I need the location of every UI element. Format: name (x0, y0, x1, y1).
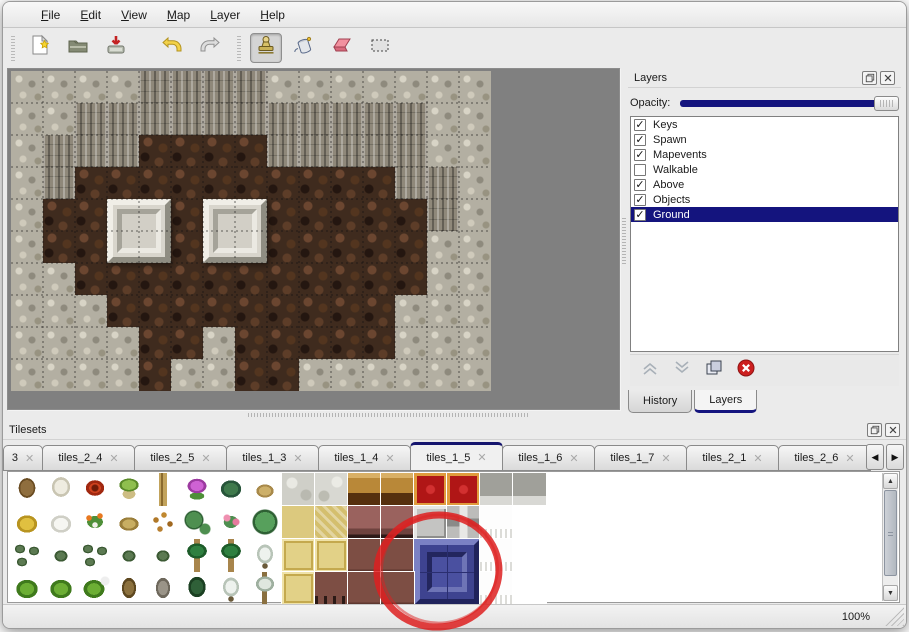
map-tile (363, 263, 395, 295)
map-tile (427, 135, 459, 167)
map-tile (299, 295, 331, 327)
tileset-tile-stump[interactable] (112, 473, 146, 506)
tileset-tile-fluff[interactable] (480, 539, 513, 572)
tileset-tab-tiles_2_1[interactable]: tiles_2_1✕ (686, 445, 779, 471)
right-arrow-icon: ▶ (892, 452, 899, 463)
map-tile (75, 199, 107, 231)
tileset-tab-tiles_1_7[interactable]: tiles_1_7✕ (594, 445, 687, 471)
tileset-tile-wood[interactable] (381, 473, 414, 506)
map-tile (299, 135, 331, 167)
map-tile (331, 135, 363, 167)
delete-layer-button[interactable] (734, 359, 758, 383)
fill-tool-button[interactable] (288, 33, 320, 63)
layer-action-buttons (630, 354, 899, 386)
menu-bar: FileEditViewMapLayerHelp (3, 2, 906, 28)
opacity-label: Opacity: (630, 97, 680, 109)
layer-name: Ground (653, 209, 690, 221)
map-tile (459, 263, 491, 295)
layers-panel-title: Layers (634, 72, 859, 84)
tileset-tile-flowerred[interactable] (78, 473, 112, 506)
scroll-down-button[interactable]: ▼ (883, 585, 898, 601)
tileset-tile-plain[interactable] (513, 539, 546, 572)
scroll-up-button[interactable]: ▲ (883, 473, 898, 489)
select-tool-button[interactable] (364, 33, 396, 63)
tileset-tab-tiles_1_4[interactable]: tiles_1_4✕ (318, 445, 411, 471)
left-arrow-icon: ◀ (872, 452, 879, 463)
layer-visibility-checkbox[interactable]: ✓ (634, 179, 646, 191)
map-tile (267, 135, 299, 167)
layer-visibility-checkbox[interactable]: ✓ (634, 134, 646, 146)
map-tile (107, 359, 139, 391)
layer-name: Keys (653, 119, 677, 131)
tab-label: tiles_2_1 (702, 452, 746, 464)
map-tile (11, 263, 43, 295)
map-tile (203, 295, 235, 327)
map-tile (459, 71, 491, 103)
map-tile (43, 231, 75, 263)
tileset-view[interactable]: ▲ ▼ (7, 471, 900, 603)
tileset-tab-tiles_1_6[interactable]: tiles_1_6✕ (502, 445, 595, 471)
delete-layer-icon (736, 358, 756, 383)
map-pillar-tile (203, 199, 267, 263)
map-tile (363, 71, 395, 103)
tileset-tile-shrub[interactable] (44, 539, 78, 572)
tileset-tile-cobble[interactable] (282, 473, 315, 506)
map-tile (11, 167, 43, 199)
tileset-tile-treedark[interactable] (180, 572, 214, 605)
close-tab-icon[interactable]: ✕ (845, 452, 854, 465)
map-tile (139, 359, 171, 391)
toolbar-grip[interactable] (237, 35, 241, 61)
map-tile (267, 359, 299, 391)
map-tile (459, 199, 491, 231)
layers-panel-titlebar: Layers (628, 68, 901, 88)
tileset-tile-treetwist[interactable] (112, 572, 146, 605)
map-tile (331, 327, 363, 359)
lower-layer-icon (672, 358, 692, 383)
layer-visibility-checkbox[interactable]: ✓ (634, 209, 646, 221)
tilesets-panel-titlebar: Tilesets (3, 420, 906, 440)
tileset-tile-shrubs[interactable] (78, 539, 112, 572)
map-tile (459, 167, 491, 199)
map-tile (235, 103, 267, 135)
tileset-tile-brown[interactable] (348, 539, 381, 572)
scrollbar-thumb[interactable] (884, 490, 897, 576)
tileset-tile-brown[interactable] (381, 539, 414, 572)
layer-row-above[interactable]: ✓Above (631, 177, 898, 192)
tileset-tile-cobble2[interactable] (315, 473, 348, 506)
map-tile (427, 103, 459, 135)
map-tile (11, 71, 43, 103)
map-tile (331, 231, 363, 263)
close-tab-icon[interactable]: ✕ (661, 452, 670, 465)
map-tile (299, 359, 331, 391)
tileset-tile-shrub[interactable] (146, 539, 180, 572)
close-tab-icon[interactable]: ✕ (109, 452, 118, 465)
map-tile (299, 199, 331, 231)
tab-label: 3 (12, 452, 18, 464)
tileset-tile-pinesnow[interactable] (214, 572, 248, 605)
tab-scroll-right-button[interactable]: ▶ (886, 444, 904, 470)
tileset-tile-palmsnow[interactable] (248, 572, 282, 605)
map-tile (459, 359, 491, 391)
close-tab-icon[interactable]: ✕ (569, 452, 578, 465)
tileset-tile-plain[interactable] (513, 572, 546, 605)
map-tile (459, 135, 491, 167)
map-tile (11, 327, 43, 359)
tileset-tile-bushsnow[interactable] (78, 572, 112, 605)
tileset-tile-bush[interactable] (44, 572, 78, 605)
map-tile (139, 71, 171, 103)
tileset-tile-treewhite[interactable] (44, 473, 78, 506)
tileset-tile-carpet[interactable] (414, 473, 447, 506)
tileset-tile-block2[interactable] (447, 506, 480, 539)
tileset-tile-flowerpurple[interactable] (180, 473, 214, 506)
toolbar (3, 29, 906, 66)
map-tile (267, 167, 299, 199)
tileset-tab-tiles_2_5[interactable]: tiles_2_5✕ (134, 445, 227, 471)
tab-scroll-left-button[interactable]: ◀ (866, 444, 884, 470)
map-tile (427, 199, 459, 231)
map-tile (427, 231, 459, 263)
map-tile (363, 199, 395, 231)
map-tile (395, 359, 427, 391)
tileset-tab-3[interactable]: 3✕ (3, 445, 43, 471)
map-tile (267, 199, 299, 231)
map-tile (331, 263, 363, 295)
close-tab-icon[interactable]: ✕ (385, 452, 394, 465)
map-tile (267, 103, 299, 135)
zoom-level: 100% (842, 611, 870, 623)
map-tile (139, 167, 171, 199)
map-tile (171, 295, 203, 327)
close-tab-icon[interactable]: ✕ (201, 452, 210, 465)
map-tile (171, 327, 203, 359)
map-tile (395, 263, 427, 295)
tileset-tile-palm[interactable] (214, 539, 248, 572)
tileset-tile-stone[interactable] (480, 473, 513, 506)
map-tile (363, 359, 395, 391)
tileset-tile-wood[interactable] (348, 473, 381, 506)
float-panel-icon[interactable] (862, 71, 877, 85)
tileset-tile-pinesnow[interactable] (248, 539, 282, 572)
map-tile (299, 263, 331, 295)
map-tile (235, 295, 267, 327)
up-arrow-icon: ▲ (887, 478, 894, 485)
tileset-tile-fern[interactable] (214, 473, 248, 506)
layer-name: Mapevents (653, 149, 707, 161)
vertical-splitter[interactable] (620, 68, 628, 410)
menu-item-layer[interactable]: Layer (200, 5, 250, 25)
down-arrow-icon: ▼ (887, 590, 894, 597)
map-tile (363, 295, 395, 327)
layer-row-spawn[interactable]: ✓Spawn (631, 132, 898, 147)
map-tile (395, 199, 427, 231)
map-tile (171, 135, 203, 167)
map-tile (75, 103, 107, 135)
map-tile (267, 263, 299, 295)
map-tile (203, 327, 235, 359)
map-tile (299, 167, 331, 199)
tileset-tile-maroon[interactable] (381, 506, 414, 539)
stamp-icon (254, 33, 278, 62)
close-tab-icon[interactable]: ✕ (293, 452, 302, 465)
raise-layer-button[interactable] (638, 359, 662, 383)
tab-label: tiles_1_5 (426, 452, 470, 464)
map-tile (267, 71, 299, 103)
stamp-tool-button[interactable] (250, 33, 282, 63)
tileset-tile-plain[interactable] (513, 506, 546, 539)
map-tile (107, 71, 139, 103)
layer-row-ground[interactable]: ✓Ground (631, 207, 898, 222)
layer-row-walkable[interactable]: Walkable (631, 162, 898, 177)
layer-row-objects[interactable]: ✓Objects (631, 192, 898, 207)
menu-item-file[interactable]: File (31, 5, 70, 25)
undo-tool-button[interactable] (156, 33, 188, 63)
menu-item-map[interactable]: Map (157, 5, 200, 25)
map-tile (395, 71, 427, 103)
map-tile (459, 327, 491, 359)
map-tile (363, 167, 395, 199)
duplicate-layer-icon (704, 358, 724, 383)
tileset-tile-leaves[interactable] (146, 506, 180, 539)
layer-row-keys[interactable]: ✓Keys (631, 117, 898, 132)
opacity-slider[interactable] (680, 95, 899, 111)
map-tile (299, 71, 331, 103)
map-tile (75, 71, 107, 103)
tileset-tile-grassdry[interactable] (112, 506, 146, 539)
map-tile (203, 103, 235, 135)
duplicate-layer-button[interactable] (702, 359, 726, 383)
layer-visibility-checkbox[interactable]: ✓ (634, 194, 646, 206)
tileset-scrollbar[interactable]: ▲ ▼ (882, 473, 898, 601)
tileset-tile-lilypad[interactable] (180, 506, 214, 539)
map-tile (203, 167, 235, 199)
layers-dock: Layers Opacity: ✓Keys✓Spawn✓MapeventsWal… (628, 68, 901, 413)
map-tile (43, 359, 75, 391)
map-tile (139, 263, 171, 295)
map-tile (395, 327, 427, 359)
map-tile (427, 263, 459, 295)
menu-item-help[interactable]: Help (250, 5, 295, 25)
map-tile (299, 103, 331, 135)
map-tile (395, 231, 427, 263)
close-panel-icon[interactable] (885, 423, 900, 437)
map-tile (11, 135, 43, 167)
map-tile (11, 359, 43, 391)
layer-name: Walkable (653, 164, 698, 176)
menu-item-edit[interactable]: Edit (70, 5, 111, 25)
app-window: FileEditViewMapLayerHelp Layers Opacity:… (2, 1, 907, 629)
map-tile (11, 295, 43, 327)
opacity-slider-handle[interactable] (874, 96, 899, 111)
map-tile (235, 71, 267, 103)
map-tile (427, 167, 459, 199)
map-canvas[interactable] (11, 71, 491, 391)
menu-item-view[interactable]: View (111, 5, 157, 25)
layer-row-mapevents[interactable]: ✓Mapevents (631, 147, 898, 162)
tileset-tile-blue2[interactable] (414, 539, 480, 605)
new-file-tool-button[interactable] (24, 33, 56, 63)
tileset-tile-tan1[interactable] (282, 506, 315, 539)
tileset-tile-treebare[interactable] (10, 473, 44, 506)
layer-visibility-checkbox[interactable] (634, 164, 646, 176)
float-panel-icon[interactable] (867, 423, 882, 437)
layer-name: Spawn (653, 134, 687, 146)
tileset-tile-plantdry[interactable] (248, 473, 282, 506)
tab-label: tiles_1_6 (518, 452, 562, 464)
map-tile (203, 71, 235, 103)
tileset-tile-tan2[interactable] (315, 506, 348, 539)
map-tile (267, 231, 299, 263)
tileset-tile-palm[interactable] (180, 539, 214, 572)
map-tile (331, 167, 363, 199)
map-tile (107, 103, 139, 135)
map-tile (363, 135, 395, 167)
map-panel (7, 68, 620, 410)
open-tool-button[interactable] (62, 33, 94, 63)
map-tile (139, 103, 171, 135)
layer-visibility-checkbox[interactable]: ✓ (634, 119, 646, 131)
tileset-tab-tiles_2_4[interactable]: tiles_2_4✕ (42, 445, 135, 471)
eraser-tool-button[interactable] (326, 33, 358, 63)
tileset-tile-fluff[interactable] (480, 506, 513, 539)
map-tile (171, 167, 203, 199)
tileset-tile-bush[interactable] (10, 572, 44, 605)
tileset-tile-brown[interactable] (348, 572, 381, 605)
map-tile (171, 231, 203, 263)
map-tile (107, 135, 139, 167)
tileset-tabbar: 3✕tiles_2_4✕tiles_2_5✕tiles_1_3✕tiles_1_… (3, 440, 906, 471)
map-tile (203, 135, 235, 167)
close-tab-icon[interactable]: ✕ (25, 452, 34, 465)
tileset-tile-treegray[interactable] (146, 572, 180, 605)
save-icon (104, 33, 128, 62)
redo-tool-button[interactable] (194, 33, 226, 63)
map-tile (107, 263, 139, 295)
map-tile (43, 71, 75, 103)
tab-label: tiles_1_3 (242, 452, 286, 464)
map-tile (235, 263, 267, 295)
map-tile (299, 327, 331, 359)
status-bar: 100% (3, 604, 906, 628)
tileset-tile-flowerorange[interactable] (78, 506, 112, 539)
splitter-grip (622, 218, 626, 264)
tileset-tile-lilypadbig[interactable] (248, 506, 282, 539)
map-tile (75, 135, 107, 167)
save-tool-button[interactable] (100, 33, 132, 63)
tab-label: tiles_1_4 (334, 452, 378, 464)
resize-grip[interactable] (884, 606, 904, 626)
redo-icon (198, 33, 222, 62)
map-tile (267, 327, 299, 359)
tilesets-panel-title: Tilesets (9, 424, 864, 436)
tileset-tile-fluff[interactable] (480, 572, 513, 605)
map-tile (299, 231, 331, 263)
close-panel-icon[interactable] (880, 71, 895, 85)
splitter-grip (248, 413, 528, 417)
tileset-tile-carpet[interactable] (447, 473, 480, 506)
map-tile (203, 359, 235, 391)
map-tile (43, 103, 75, 135)
map-tile (395, 135, 427, 167)
map-tile (395, 167, 427, 199)
tileset-tile-maroon[interactable] (348, 506, 381, 539)
tileset-tile-tan3[interactable] (282, 539, 315, 572)
map-tile (427, 359, 459, 391)
tileset-tile-hay[interactable] (10, 506, 44, 539)
layer-name: Objects (653, 194, 690, 206)
map-tile (203, 263, 235, 295)
close-tab-icon[interactable]: ✕ (477, 451, 486, 464)
map-tile (43, 167, 75, 199)
tileset-tile-stone[interactable] (513, 473, 546, 506)
opacity-slider-track (680, 100, 895, 107)
map-tile (395, 103, 427, 135)
toolbar-grip[interactable] (11, 35, 15, 61)
map-tile (427, 295, 459, 327)
map-tile (11, 231, 43, 263)
tileset-tab-tiles_1_3[interactable]: tiles_1_3✕ (226, 445, 319, 471)
tab-label: tiles_2_6 (794, 452, 838, 464)
tileset-tile-block1[interactable] (414, 506, 447, 539)
tileset-tab-tiles_2_6[interactable]: tiles_2_6✕ (778, 445, 871, 471)
tileset-tile-legs[interactable] (315, 572, 348, 605)
map-tile (171, 71, 203, 103)
layers-list: ✓Keys✓Spawn✓MapeventsWalkable✓Above✓Obje… (630, 116, 899, 352)
tileset-tile-snowmound[interactable] (44, 506, 78, 539)
map-tile (43, 135, 75, 167)
tileset-tile-tan3[interactable] (315, 539, 348, 572)
map-tile (427, 71, 459, 103)
tileset-tile-tan3[interactable] (282, 572, 315, 605)
tileset-tile-shrub[interactable] (112, 539, 146, 572)
map-tile (139, 135, 171, 167)
map-tile (363, 103, 395, 135)
map-tile (43, 263, 75, 295)
tileset-tile-shrubs[interactable] (10, 539, 44, 572)
map-tile (43, 327, 75, 359)
map-tile (427, 327, 459, 359)
map-tile (363, 327, 395, 359)
fill-icon (292, 33, 316, 62)
tileset-tab-tiles_1_5[interactable]: tiles_1_5✕ (410, 442, 503, 471)
close-tab-icon[interactable]: ✕ (753, 452, 762, 465)
map-tile (331, 295, 363, 327)
map-tile (235, 327, 267, 359)
map-tile (43, 295, 75, 327)
layer-visibility-checkbox[interactable]: ✓ (634, 149, 646, 161)
map-tile (235, 167, 267, 199)
map-tile (75, 295, 107, 327)
map-tile (171, 103, 203, 135)
layer-name: Above (653, 179, 684, 191)
map-tile (139, 327, 171, 359)
map-tile (107, 295, 139, 327)
tileset-tile-trunk[interactable] (146, 473, 180, 506)
map-tile (459, 295, 491, 327)
map-tile (331, 103, 363, 135)
map-tile (459, 231, 491, 263)
open-icon (66, 33, 90, 62)
horizontal-splitter[interactable] (3, 410, 906, 420)
map-tile (331, 71, 363, 103)
lower-layer-button[interactable] (670, 359, 694, 383)
map-tile (331, 199, 363, 231)
new-file-icon (28, 33, 52, 62)
tileset-tile-flowerpink[interactable] (214, 506, 248, 539)
tileset-tile-brown[interactable] (381, 572, 414, 605)
